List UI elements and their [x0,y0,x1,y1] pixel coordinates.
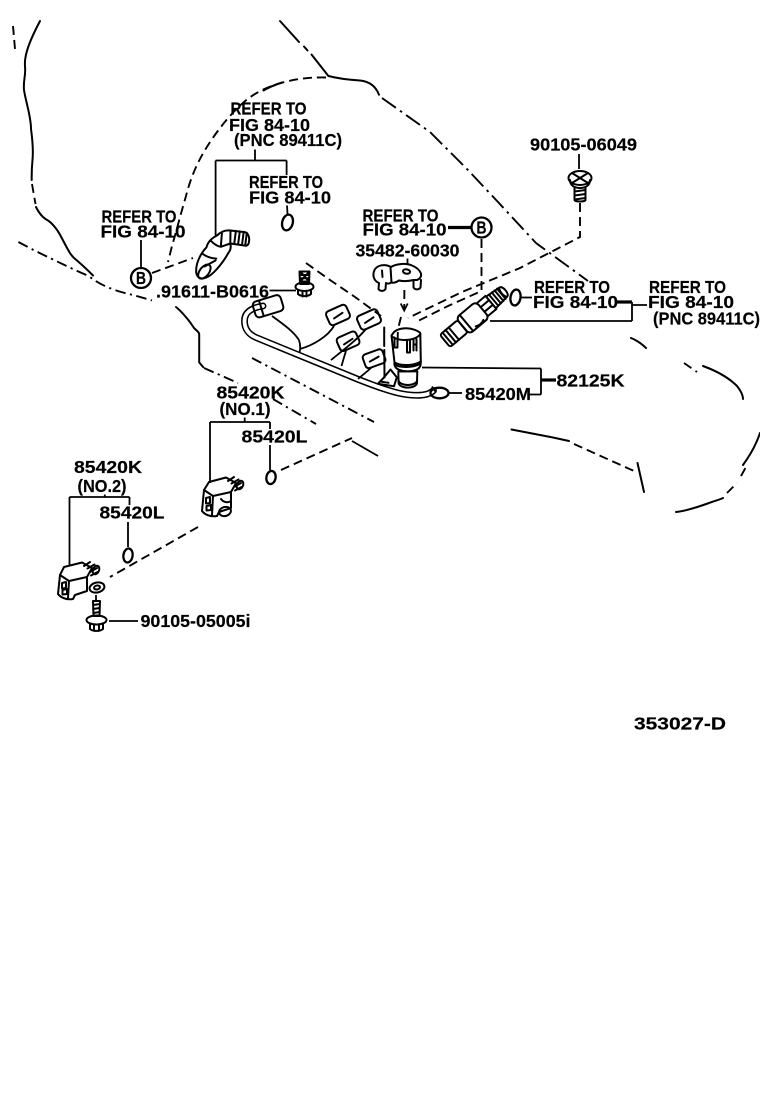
svg-text:82125K: 82125K [557,371,625,391]
svg-text:(NO.2): (NO.2) [78,476,127,496]
svg-text:90105-06049: 90105-06049 [530,135,637,155]
svg-text:FIG 84-10: FIG 84-10 [533,292,618,312]
svg-text:.91611-B0616: .91611-B0616 [156,282,269,302]
svg-text:FIG 84-10: FIG 84-10 [363,220,447,240]
svg-text:85420M: 85420M [465,384,531,404]
svg-text:353027-D: 353027-D [634,714,726,734]
svg-text:B: B [477,218,487,238]
svg-text:90105-05005i: 90105-05005i [141,611,251,631]
svg-text:35482-60030: 35482-60030 [356,241,460,261]
svg-text:(NO.1): (NO.1) [220,399,271,419]
svg-text:FIG 84-10: FIG 84-10 [101,222,186,242]
svg-text:B: B [136,268,146,288]
svg-text:85420K: 85420K [74,457,142,477]
svg-text:(PNC 89411C): (PNC 89411C) [234,130,342,150]
svg-text:85420L: 85420L [242,427,308,447]
svg-text:85420L: 85420L [100,503,165,523]
svg-text:(PNC 89411C): (PNC 89411C) [653,308,760,328]
svg-text:FIG 84-10: FIG 84-10 [249,188,331,208]
